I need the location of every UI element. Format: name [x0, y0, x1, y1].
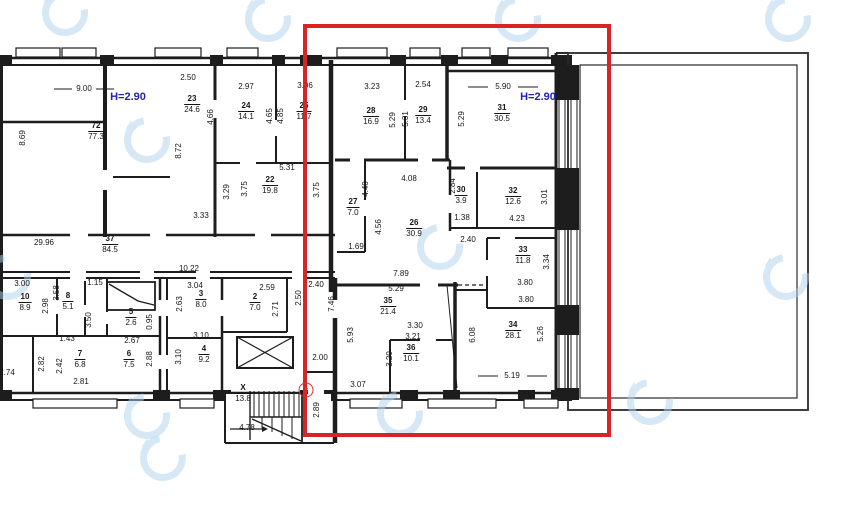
dimension-label: 29.96: [34, 239, 54, 247]
room-number: 5: [125, 308, 136, 318]
dimension-label: 5.31: [279, 164, 295, 172]
room-number: 22: [262, 176, 278, 186]
dimension-label: 2.97: [238, 83, 254, 91]
room-label: 3784.5: [102, 235, 118, 254]
room-number: X: [235, 384, 251, 394]
room-label: 108.9: [19, 293, 32, 312]
room-label: X13.8: [235, 384, 251, 403]
room-number: 10: [19, 293, 32, 303]
room-number: 8: [62, 292, 73, 302]
dimension-label: 8.69: [19, 130, 27, 146]
dimension-label: 4.66: [207, 109, 215, 125]
room-label: 2414.1: [238, 102, 254, 121]
room-number: 3: [195, 290, 206, 300]
room-area: 7.0: [249, 303, 260, 312]
dimension-label: 2.81: [73, 378, 89, 386]
room-area: 6.8: [74, 360, 85, 369]
entrance-number-badge: 3: [299, 383, 314, 398]
room-label: 7277.3: [88, 122, 104, 141]
room-label: 27.0: [249, 293, 260, 312]
room-number: 23: [184, 95, 200, 105]
dimension-label: 2.50: [180, 74, 196, 82]
dimension-label: 2.98: [42, 298, 50, 314]
room-number: 2: [249, 293, 260, 303]
room-area: 5.1: [62, 302, 73, 311]
dimension-label: 2.63: [176, 296, 184, 312]
dimension-label: 3.33: [193, 212, 209, 220]
dimension-label: 4.78: [239, 424, 255, 432]
room-label: 76.8: [74, 350, 85, 369]
dimension-label: 3.29: [223, 184, 231, 200]
room-area: 77.3: [88, 132, 104, 141]
room-area: 13.8: [235, 394, 251, 403]
dimension-label: 3.75: [241, 181, 249, 197]
room-label: 85.1: [62, 292, 73, 311]
dimension-label: 4.65: [266, 108, 274, 124]
dimension-label: 2.82: [38, 356, 46, 372]
room-area: 7.5: [123, 360, 134, 369]
room-label: 38.0: [195, 290, 206, 309]
dimension-label: 2.74: [0, 369, 15, 377]
dimension-label: 1.43: [59, 335, 75, 343]
dimension-label: 9.00: [76, 85, 92, 93]
room-number: 7: [74, 350, 85, 360]
dimension-label: 3.50: [85, 312, 93, 328]
dimension-label: 2.59: [259, 284, 275, 292]
dimension-label: 3.00: [14, 280, 30, 288]
room-area: 8.0: [195, 300, 206, 309]
room-area: 24.6: [184, 105, 200, 114]
dimension-label: 8.72: [175, 143, 183, 159]
room-area: 14.1: [238, 112, 254, 121]
dimension-label: 2.88: [146, 351, 154, 367]
room-area: 8.9: [19, 303, 32, 312]
room-label: 2324.6: [184, 95, 200, 114]
dimension-label: 4.85: [277, 108, 285, 124]
dimension-label: 10.22: [179, 265, 199, 273]
room-label: 2219.8: [262, 176, 278, 195]
dimension-label: 2.50: [295, 290, 303, 306]
dimension-label: 1.15: [87, 279, 103, 287]
ceiling-height-label: H=2.90: [110, 91, 146, 103]
room-label: 52.6: [125, 308, 136, 327]
floor-plan: 9.002.502.973.063.232.545.908.698.724.66…: [0, 0, 868, 506]
highlight-rectangle: [303, 24, 611, 437]
dimension-label: 2.42: [56, 358, 64, 374]
room-label: 67.5: [123, 350, 134, 369]
room-label: 49.2: [198, 345, 209, 364]
dimension-label: 0.95: [146, 314, 154, 330]
dimension-label: 3.58: [53, 285, 61, 301]
dimension-label: 2.71: [272, 301, 280, 317]
room-number: 6: [123, 350, 134, 360]
room-number: 72: [88, 122, 104, 132]
room-number: 4: [198, 345, 209, 355]
room-area: 9.2: [198, 355, 209, 364]
room-number: 37: [102, 235, 118, 245]
room-area: 2.6: [125, 318, 136, 327]
room-area: 84.5: [102, 245, 118, 254]
room-number: 24: [238, 102, 254, 112]
room-area: 19.8: [262, 186, 278, 195]
dimension-label: 3.10: [175, 349, 183, 365]
dimension-label: 3.10: [193, 332, 209, 340]
dimension-label: 2.67: [124, 337, 140, 345]
